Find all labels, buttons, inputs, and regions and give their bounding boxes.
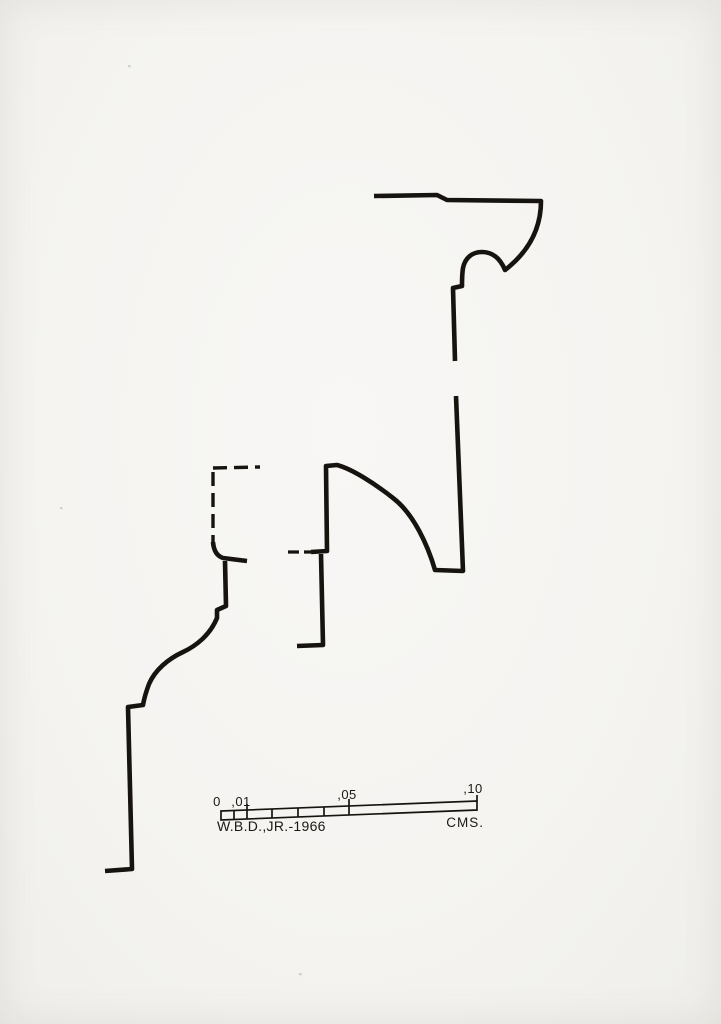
left-block-foot bbox=[213, 542, 247, 561]
left-block-top-dashed bbox=[213, 467, 260, 468]
drawing-sheet: 0 ,01 ,05 ,10 CMS. W.B.D.,JR.-1966 bbox=[0, 0, 721, 1024]
crown-profile bbox=[374, 195, 541, 361]
profile-paths bbox=[61, 66, 541, 974]
scale-label-0: 0 bbox=[213, 794, 221, 809]
mid-profile-lower-leg bbox=[297, 554, 323, 646]
mid-profile-right bbox=[311, 396, 463, 571]
paper-specks bbox=[61, 66, 301, 974]
scale-label-01: ,01 bbox=[231, 794, 251, 809]
scale-label-10: ,10 bbox=[463, 781, 483, 796]
base-profile bbox=[105, 561, 226, 871]
scale-unit-label: CMS. bbox=[446, 815, 484, 830]
draftsman-credit: W.B.D.,JR.-1966 bbox=[217, 818, 326, 834]
molding-profile-figure: 0 ,01 ,05 ,10 CMS. W.B.D.,JR.-1966 bbox=[0, 0, 721, 1024]
scale-label-05: ,05 bbox=[337, 787, 357, 802]
